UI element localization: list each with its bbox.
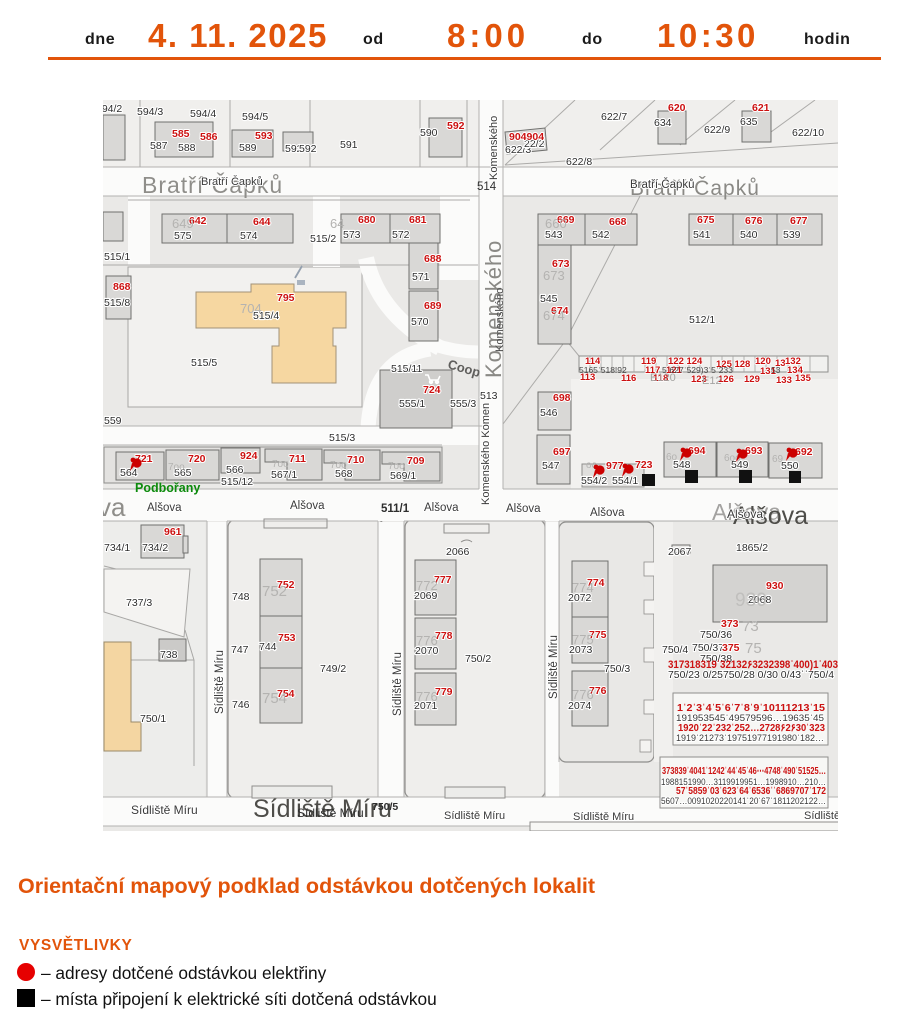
svg-text:754: 754 <box>262 690 287 707</box>
svg-text:515/5: 515/5 <box>191 357 217 369</box>
svg-text:191953545ˈ49579596…19635ˈ45: 191953545ˈ49579596…19635ˈ45 <box>676 713 824 724</box>
svg-text:673: 673 <box>543 268 565 283</box>
svg-text:904904: 904904 <box>509 131 544 143</box>
svg-text:649: 649 <box>172 216 194 231</box>
svg-text:134: 134 <box>787 365 804 376</box>
svg-text:515/8: 515/8 <box>104 297 130 309</box>
svg-text:746: 746 <box>232 699 250 711</box>
svg-text:Alšova: Alšova <box>147 502 182 514</box>
svg-text:698: 698 <box>553 392 571 404</box>
svg-text:586: 586 <box>200 131 218 143</box>
svg-text:587: 587 <box>150 140 168 152</box>
svg-text:567/1: 567/1 <box>271 469 297 481</box>
svg-text:961: 961 <box>164 526 182 538</box>
svg-text:723: 723 <box>635 459 653 471</box>
svg-text:7oо: 7oо <box>272 459 289 470</box>
svg-text:Bratří Čapků: Bratří Čapků <box>201 175 263 188</box>
svg-text:930: 930 <box>766 580 784 592</box>
svg-text:620: 620 <box>668 102 686 114</box>
svg-text:776: 776 <box>416 689 438 704</box>
svg-text:Sídliště Míru: Sídliště Míru <box>214 650 226 714</box>
svg-text:738: 738 <box>160 649 178 661</box>
svg-text:Komenského Komen: Komenského Komen <box>480 403 492 505</box>
svg-text:776: 776 <box>572 687 594 702</box>
svg-text:924: 924 <box>240 450 258 462</box>
svg-text:594/2: 594/2 <box>96 103 122 115</box>
svg-text:E120: E120 <box>650 372 676 384</box>
svg-text:594/4: 594/4 <box>190 108 216 120</box>
svg-text:545: 545 <box>540 293 558 305</box>
svg-text:Bratří Čapků: Bratří Čapků <box>630 178 695 191</box>
svg-text:541: 541 <box>693 229 711 241</box>
svg-text:868: 868 <box>113 281 131 293</box>
svg-text:Alšova: Alšova <box>590 507 625 519</box>
svg-text:2066: 2066 <box>446 546 470 558</box>
svg-text:748: 748 <box>232 591 250 603</box>
svg-text:709: 709 <box>407 455 425 467</box>
svg-text:1988151990…3119919951…1998910…: 1988151990…3119919951…1998910…210… <box>661 777 826 788</box>
svg-text:570: 570 <box>411 316 429 328</box>
svg-text:772: 772 <box>416 578 438 593</box>
svg-text:2067: 2067 <box>668 546 692 558</box>
svg-text:750/36: 750/36 <box>700 629 732 641</box>
svg-text:Sídliště Míru: Sídliště Míru <box>131 803 198 817</box>
svg-text:1865/2: 1865/2 <box>736 542 768 554</box>
svg-text:677: 677 <box>790 215 808 227</box>
svg-text:375: 375 <box>722 642 740 654</box>
svg-text:573: 573 <box>343 229 361 241</box>
svg-text:Alšova: Alšova <box>506 503 541 515</box>
svg-text:Komenského: Komenského <box>488 116 500 180</box>
svg-text:680: 680 <box>358 214 376 226</box>
svg-text:75: 75 <box>745 640 762 657</box>
svg-text:668: 668 <box>609 216 627 228</box>
svg-text:574: 574 <box>240 230 258 242</box>
svg-text:559: 559 <box>104 415 122 427</box>
svg-text:750/1: 750/1 <box>140 713 166 725</box>
svg-text:734/1: 734/1 <box>104 542 130 554</box>
svg-text:555/1: 555/1 <box>399 398 425 410</box>
svg-text:681: 681 <box>409 214 427 226</box>
svg-text:Sídliště Míru: Sídliště Míru <box>297 806 364 820</box>
svg-text:64: 64 <box>330 216 344 231</box>
svg-text:704: 704 <box>240 301 262 316</box>
svg-text:977: 977 <box>606 460 624 472</box>
svg-text:744: 744 <box>259 641 277 653</box>
svg-text:689: 689 <box>424 300 442 312</box>
svg-text:644: 644 <box>253 216 271 228</box>
svg-text:540: 540 <box>740 229 758 241</box>
svg-text:133: 133 <box>776 375 792 386</box>
svg-text:795: 795 <box>277 292 295 304</box>
svg-text:373839ˈ4041ˈ1242ˈ44ˈ45ˈ46⋯4748: 373839ˈ4041ˈ1242ˈ44ˈ45ˈ46⋯4748ˈ490ˈ51525… <box>662 765 826 777</box>
svg-text:69: 69 <box>772 454 784 465</box>
svg-text:575: 575 <box>174 230 192 242</box>
svg-text:515/12: 515/12 <box>221 476 253 488</box>
svg-text:711: 711 <box>289 453 306 465</box>
svg-text:710: 710 <box>347 454 365 466</box>
svg-text:775: 775 <box>572 632 594 647</box>
svg-text:675: 675 <box>697 214 715 226</box>
svg-text:5165ˈ518!92: 5165ˈ518!92 <box>579 365 627 375</box>
svg-text:622/8: 622/8 <box>566 156 592 168</box>
svg-text:7oo: 7oo <box>168 462 185 473</box>
svg-text:676: 676 <box>745 215 763 227</box>
svg-text:697: 697 <box>553 446 571 458</box>
svg-text:73: 73 <box>742 618 759 635</box>
svg-text:693: 693 <box>745 445 763 457</box>
svg-text:513: 513 <box>480 390 498 402</box>
svg-text:Sídliště Míru: Sídliště Míru <box>444 810 505 822</box>
svg-text:515/11: 515/11 <box>391 363 422 375</box>
svg-text:590: 590 <box>420 127 438 139</box>
svg-text:571: 571 <box>412 271 430 283</box>
svg-text:688: 688 <box>424 253 442 265</box>
svg-text:Sídliště: Sídliště <box>804 810 840 822</box>
svg-text:737/3: 737/3 <box>126 597 152 609</box>
svg-text:Sídliště Míru: Sídliště Míru <box>573 811 634 823</box>
svg-text:674: 674 <box>543 308 565 323</box>
svg-text:515/3: 515/3 <box>329 432 355 444</box>
svg-text:53: 53 <box>771 365 781 375</box>
svg-text:591: 591 <box>340 139 358 151</box>
svg-text:750/2: 750/2 <box>465 653 491 665</box>
svg-text:Podbořany: Podbořany <box>135 481 200 495</box>
svg-text:Alšova: Alšova <box>727 507 763 521</box>
svg-text:Sídliště Míru: Sídliště Míru <box>548 635 560 699</box>
svg-text:635: 635 <box>740 116 758 128</box>
svg-text:547: 547 <box>542 460 560 472</box>
svg-text:542: 542 <box>592 229 610 241</box>
svg-text:750/3: 750/3 <box>604 663 630 675</box>
svg-text:750/4: 750/4 <box>662 644 688 656</box>
svg-text:734/2: 734/2 <box>142 542 168 554</box>
svg-text:621: 621 <box>752 102 770 114</box>
svg-text:749/2: 749/2 <box>320 663 346 675</box>
svg-text:594/3: 594/3 <box>137 106 163 118</box>
svg-text:va: va <box>98 492 126 522</box>
svg-text:566: 566 <box>226 464 244 476</box>
svg-text:Komenského: Komenského <box>494 288 506 352</box>
svg-text:692: 692 <box>795 446 813 458</box>
svg-text:515/1: 515/1 <box>104 251 130 263</box>
svg-text:589: 589 <box>239 142 257 154</box>
svg-text:592: 592 <box>299 143 317 155</box>
svg-text:585: 585 <box>172 128 190 140</box>
svg-text:7oo: 7oo <box>388 461 405 472</box>
svg-text:622/10: 622/10 <box>792 127 824 139</box>
svg-text:514: 514 <box>477 181 497 193</box>
svg-text:511/1: 511/1 <box>381 503 410 515</box>
svg-text:592: 592 <box>447 120 465 132</box>
svg-text:Alšova: Alšova <box>424 502 459 514</box>
svg-text:E12: E12 <box>702 375 722 387</box>
svg-text:512/1: 512/1 <box>689 314 715 326</box>
svg-text:Sídliště Míru: Sídliště Míru <box>392 652 404 716</box>
svg-text:546: 546 <box>540 407 558 419</box>
svg-text:1919ˈ21273ˈ19751977191980ˈ182…: 1919ˈ21273ˈ19751977191980ˈ182… <box>676 733 824 744</box>
svg-text:317318319ˈ32132۶3232398ˈ400)1ˈ: 317318319ˈ32132۶3232398ˈ400)1ˈ403 <box>668 659 838 671</box>
svg-text:588: 588 <box>178 142 196 154</box>
svg-text:554/2: 554/2 <box>581 475 607 487</box>
svg-text:564: 564 <box>120 467 138 479</box>
svg-text:930: 930 <box>735 590 767 611</box>
svg-text:550: 550 <box>781 460 799 472</box>
svg-text:593: 593 <box>255 130 273 142</box>
svg-text:660: 660 <box>545 216 567 231</box>
svg-text:555/3: 555/3 <box>450 398 476 410</box>
svg-text:622/9: 622/9 <box>704 124 730 136</box>
svg-text:6o: 6o <box>666 452 678 463</box>
svg-text:572: 572 <box>392 229 410 241</box>
svg-text:373: 373 <box>721 618 739 630</box>
svg-text:515/2: 515/2 <box>310 233 336 245</box>
svg-text:594/5: 594/5 <box>242 111 268 123</box>
svg-text:622/7: 622/7 <box>601 111 627 123</box>
svg-text:753: 753 <box>278 632 296 644</box>
svg-text:724: 724 <box>423 384 441 396</box>
svg-text:720: 720 <box>188 453 206 465</box>
svg-text:776: 776 <box>416 633 438 648</box>
svg-text:5607…0091020220141ˈ20ˈ67ˈ18112: 5607…0091020220141ˈ20ˈ67ˈ1811202122… <box>661 796 826 807</box>
svg-text:539: 539 <box>783 229 801 241</box>
svg-text:750/5: 750/5 <box>372 801 398 813</box>
svg-text:554/1: 554/1 <box>612 475 638 487</box>
svg-text:774: 774 <box>572 580 594 595</box>
svg-text:7oo: 7oo <box>330 460 347 471</box>
svg-text:Alšova: Alšova <box>290 500 325 512</box>
svg-text:752: 752 <box>262 583 287 600</box>
svg-text:634: 634 <box>654 117 672 129</box>
svg-text:129: 129 <box>744 374 760 385</box>
svg-text:747: 747 <box>231 644 249 656</box>
